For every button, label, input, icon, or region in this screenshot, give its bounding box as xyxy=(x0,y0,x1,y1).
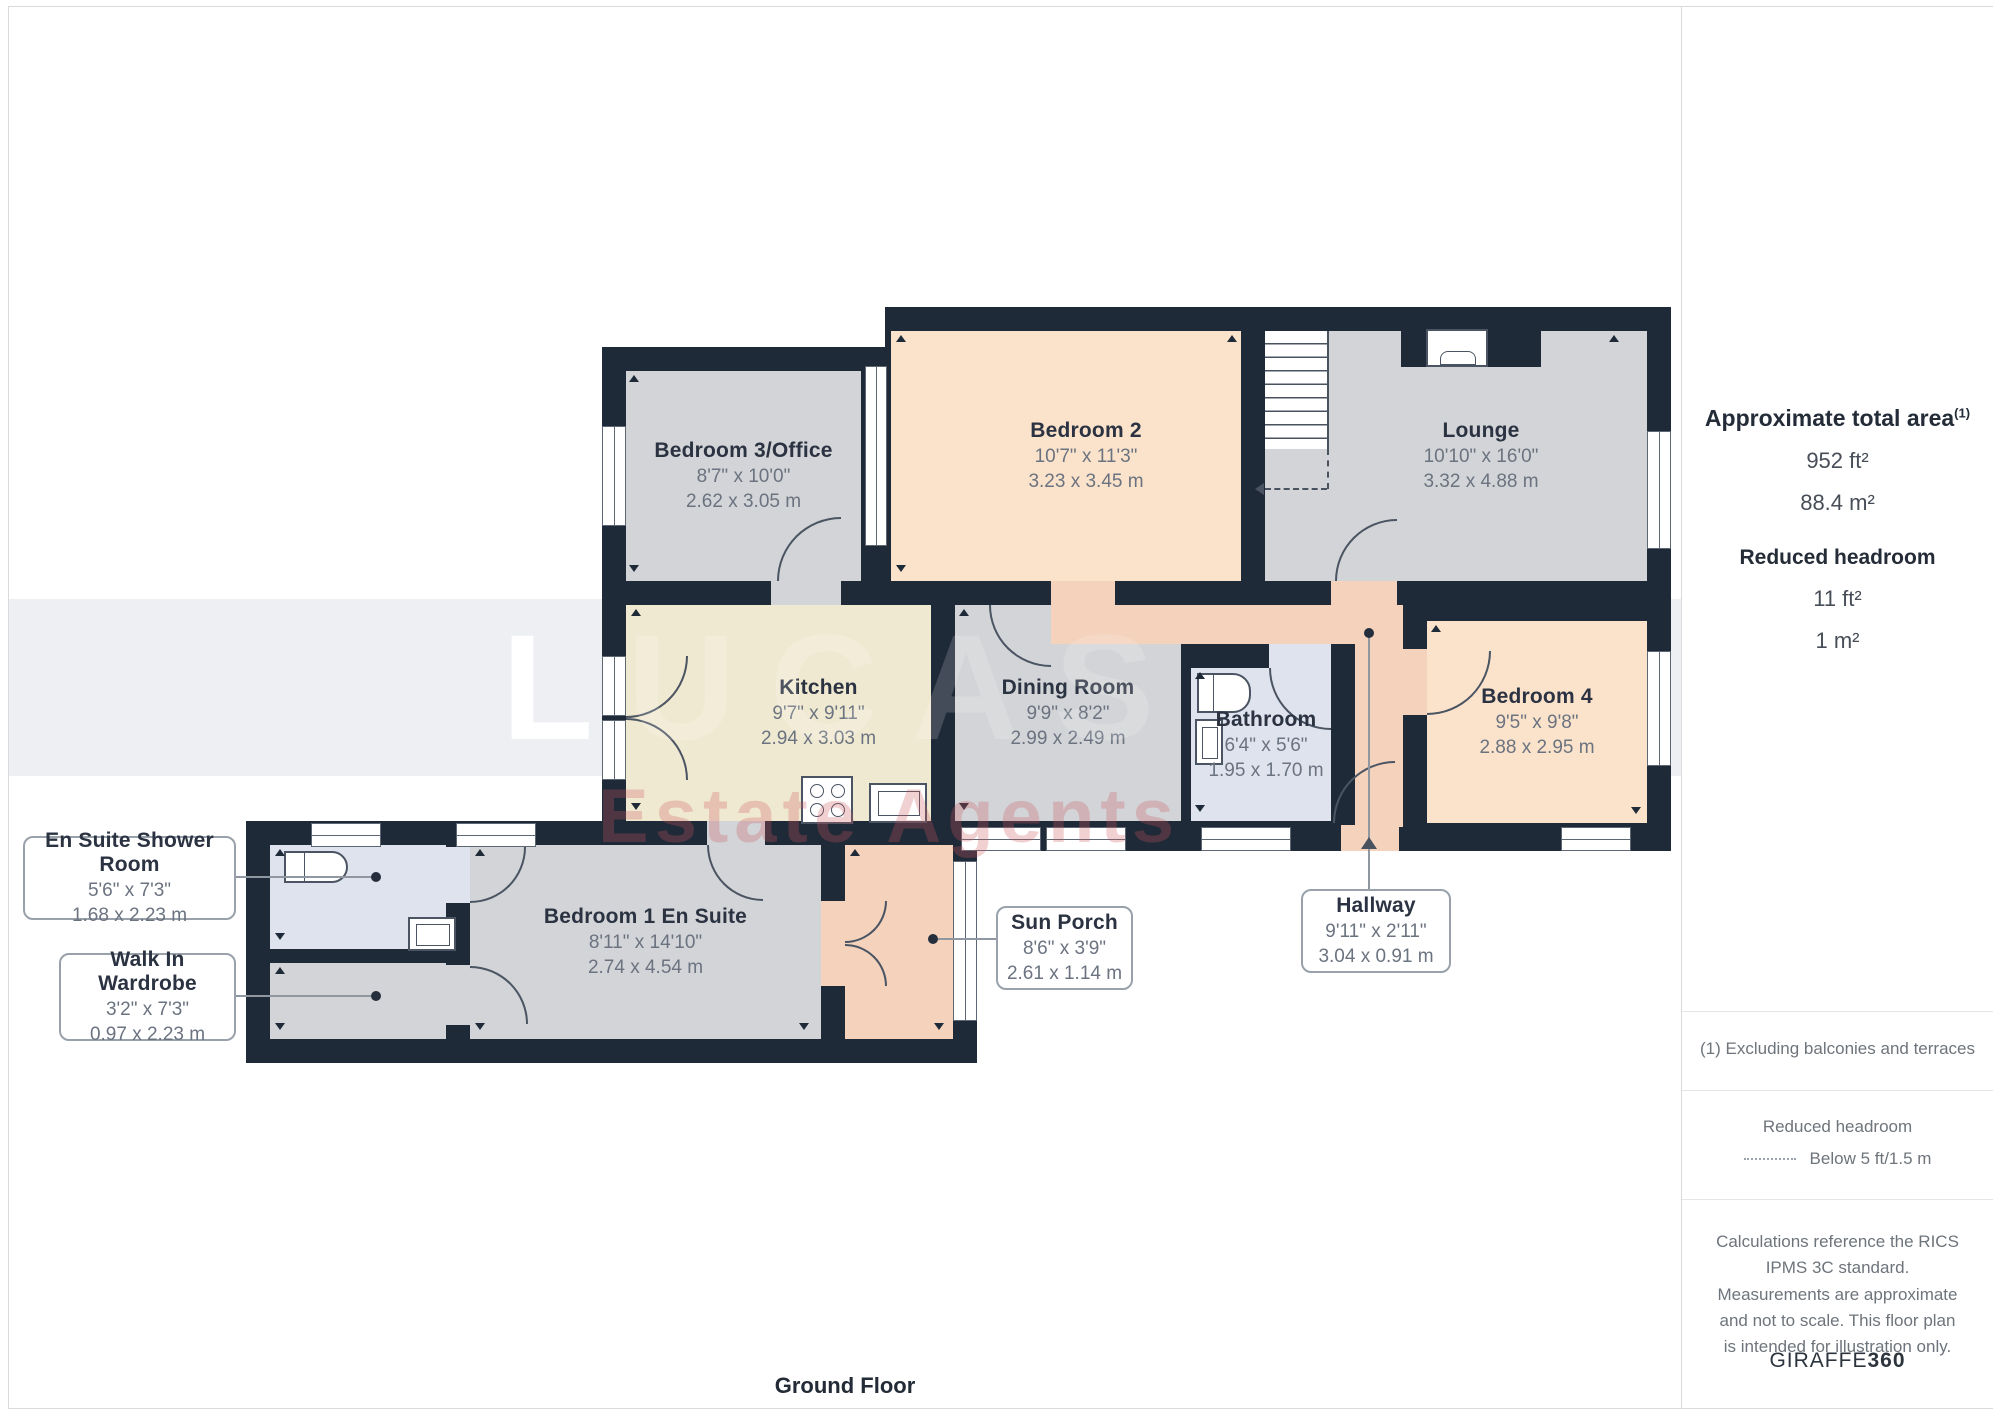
legend-row: Below 5 ft/1.5 m xyxy=(1682,1149,1993,1169)
marker-icon xyxy=(1227,335,1237,342)
marker-icon xyxy=(896,565,906,572)
floor-title: Ground Floor xyxy=(9,1373,1681,1399)
callout-name: Hallway xyxy=(1336,894,1416,918)
bathroom-toilet-icon xyxy=(1197,673,1251,713)
marker-icon xyxy=(799,1023,809,1030)
marker-icon xyxy=(631,803,641,810)
callout-dims-metric: 0.97 x 2.23 m xyxy=(90,1024,205,1046)
marker-icon xyxy=(275,849,285,856)
footnote: (1) Excluding balconies and terraces xyxy=(1692,1039,1983,1059)
marker-icon xyxy=(629,565,639,572)
marker-icon xyxy=(1631,807,1641,814)
opening-lounge xyxy=(1331,581,1397,605)
sidebar-area-summary: Approximate total area(1) 952 ft² 88.4 m… xyxy=(1682,405,1993,654)
reduced-headroom-title: Reduced headroom xyxy=(1682,546,1993,570)
callout-sun-porch: Sun Porch 8'6" x 3'9" 2.61 x 1.14 m xyxy=(996,906,1133,990)
marker-icon xyxy=(850,849,860,856)
reduced-headroom-ft: 11 ft² xyxy=(1682,586,1993,612)
leader-ensuite xyxy=(236,876,376,878)
legend-title: Reduced headroom xyxy=(1692,1117,1983,1137)
window-lounge xyxy=(1647,431,1671,549)
leader-dot-wardrobe xyxy=(371,991,381,1001)
kitchen-sink-icon xyxy=(869,783,927,823)
opening-sunporch-doors xyxy=(821,901,845,986)
marker-icon xyxy=(275,967,285,974)
callout-dims-metric: 1.68 x 2.23 m xyxy=(72,905,187,927)
leader-wardrobe xyxy=(236,995,376,997)
brand-number: 360 xyxy=(1867,1349,1905,1372)
leader-dot-sunporch xyxy=(928,934,938,944)
reduced-headroom-dash-v xyxy=(1327,449,1329,489)
leader-sunporch xyxy=(938,938,996,940)
stairs-icon xyxy=(1265,331,1329,449)
total-area-ft: 952 ft² xyxy=(1682,448,1993,474)
marker-icon xyxy=(629,375,639,382)
window-wing1 xyxy=(311,823,381,847)
window-bedroom3 xyxy=(602,426,626,526)
marker-icon xyxy=(959,803,969,810)
opening-bedroom3 xyxy=(771,581,841,605)
window-dining xyxy=(1046,827,1126,851)
bathroom-sink-icon xyxy=(1195,719,1223,765)
callout-walk-in-wardrobe: Walk In Wardrobe 3'2" x 7'3" 0.97 x 2.23… xyxy=(59,953,236,1041)
marker-icon xyxy=(1195,672,1205,679)
marker-icon xyxy=(275,1023,285,1030)
opening-bathroom xyxy=(1269,644,1331,668)
window-bedroom2 xyxy=(865,366,887,546)
marker-icon xyxy=(934,1023,944,1030)
sidebar-divider xyxy=(1682,1011,1993,1012)
marker-icon xyxy=(896,335,906,342)
room-hallway-upper xyxy=(1051,605,1403,644)
callout-name: En Suite Shower Room xyxy=(25,829,234,877)
callout-name: Sun Porch xyxy=(1011,911,1118,935)
callout-dims-imperial: 9'11" x 2'11" xyxy=(1325,921,1426,943)
window-rear xyxy=(961,827,1041,851)
window-kitchen-door1 xyxy=(602,656,626,716)
marker-icon xyxy=(1195,805,1205,812)
callout-dims-metric: 3.04 x 0.91 m xyxy=(1318,946,1433,968)
window-bedroom4 xyxy=(1647,651,1671,766)
marker-icon xyxy=(475,1023,485,1030)
total-area-m: 88.4 m² xyxy=(1682,490,1993,516)
legend-label: Below 5 ft/1.5 m xyxy=(1810,1149,1932,1169)
opening-wardrobe xyxy=(446,965,470,1025)
brand-name: GIRAFFE xyxy=(1769,1349,1867,1372)
window-kitchen-door2 xyxy=(602,720,626,780)
total-area-title-text: Approximate total area xyxy=(1705,405,1954,431)
ensuite-toilet-icon xyxy=(284,851,348,883)
sidebar-divider xyxy=(1682,1199,1993,1200)
marker-icon xyxy=(275,933,285,940)
room-wardrobe xyxy=(270,963,446,1039)
total-area-footnote-ref: (1) xyxy=(1954,405,1970,420)
callout-dims-metric: 2.61 x 1.14 m xyxy=(1007,963,1122,985)
ensuite-sink-icon xyxy=(408,917,456,951)
window-sunporch xyxy=(953,861,977,1021)
sidebar-divider xyxy=(1682,1090,1993,1091)
callout-ensuite-shower-room: En Suite Shower Room 5'6" x 7'3" 1.68 x … xyxy=(23,836,236,920)
leader-hallway xyxy=(1368,633,1370,889)
fireplace-icon xyxy=(1426,329,1488,367)
disclaimer: Calculations reference the RICS IPMS 3C … xyxy=(1712,1229,1963,1361)
marker-icon xyxy=(631,609,641,616)
callout-dims-imperial: 3'2" x 7'3" xyxy=(106,999,189,1021)
window-bedroom4-rear xyxy=(1561,827,1631,851)
reduced-headroom-dash-h xyxy=(1265,488,1327,490)
opening-ensuite xyxy=(446,847,470,903)
brand-logo: GIRAFFE360 xyxy=(1682,1349,1993,1373)
hallway-arrow-icon xyxy=(1361,837,1377,849)
opening-kitchen-bedroom1 xyxy=(707,821,765,845)
reduced-headroom-m: 1 m² xyxy=(1682,628,1993,654)
sidebar: Approximate total area(1) 952 ft² 88.4 m… xyxy=(1681,7,1993,1408)
callout-dims-imperial: 5'6" x 7'3" xyxy=(88,880,171,902)
window-bathroom xyxy=(1201,827,1291,851)
opening-bedroom4 xyxy=(1403,649,1427,715)
callout-name: Walk In Wardrobe xyxy=(61,948,234,996)
marker-icon xyxy=(475,849,485,856)
leader-dot-ensuite xyxy=(371,872,381,882)
total-area-title: Approximate total area(1) xyxy=(1682,405,1993,432)
callout-hallway: Hallway 9'11" x 2'11" 3.04 x 0.91 m xyxy=(1301,889,1451,973)
stove-icon xyxy=(801,776,853,824)
marker-icon xyxy=(1609,335,1619,342)
callout-dims-imperial: 8'6" x 3'9" xyxy=(1023,938,1106,960)
marker-icon xyxy=(959,609,969,616)
floorplan-page: LUCAS xyxy=(8,6,1993,1409)
opening-bedroom2 xyxy=(1051,581,1115,605)
room-bedroom2 xyxy=(891,331,1241,581)
stairs-arrow-icon xyxy=(1255,483,1264,495)
window-wing2 xyxy=(456,823,536,847)
leader-dot-hallway xyxy=(1364,628,1374,638)
marker-icon xyxy=(1431,625,1441,632)
dotted-line-icon xyxy=(1744,1158,1796,1160)
